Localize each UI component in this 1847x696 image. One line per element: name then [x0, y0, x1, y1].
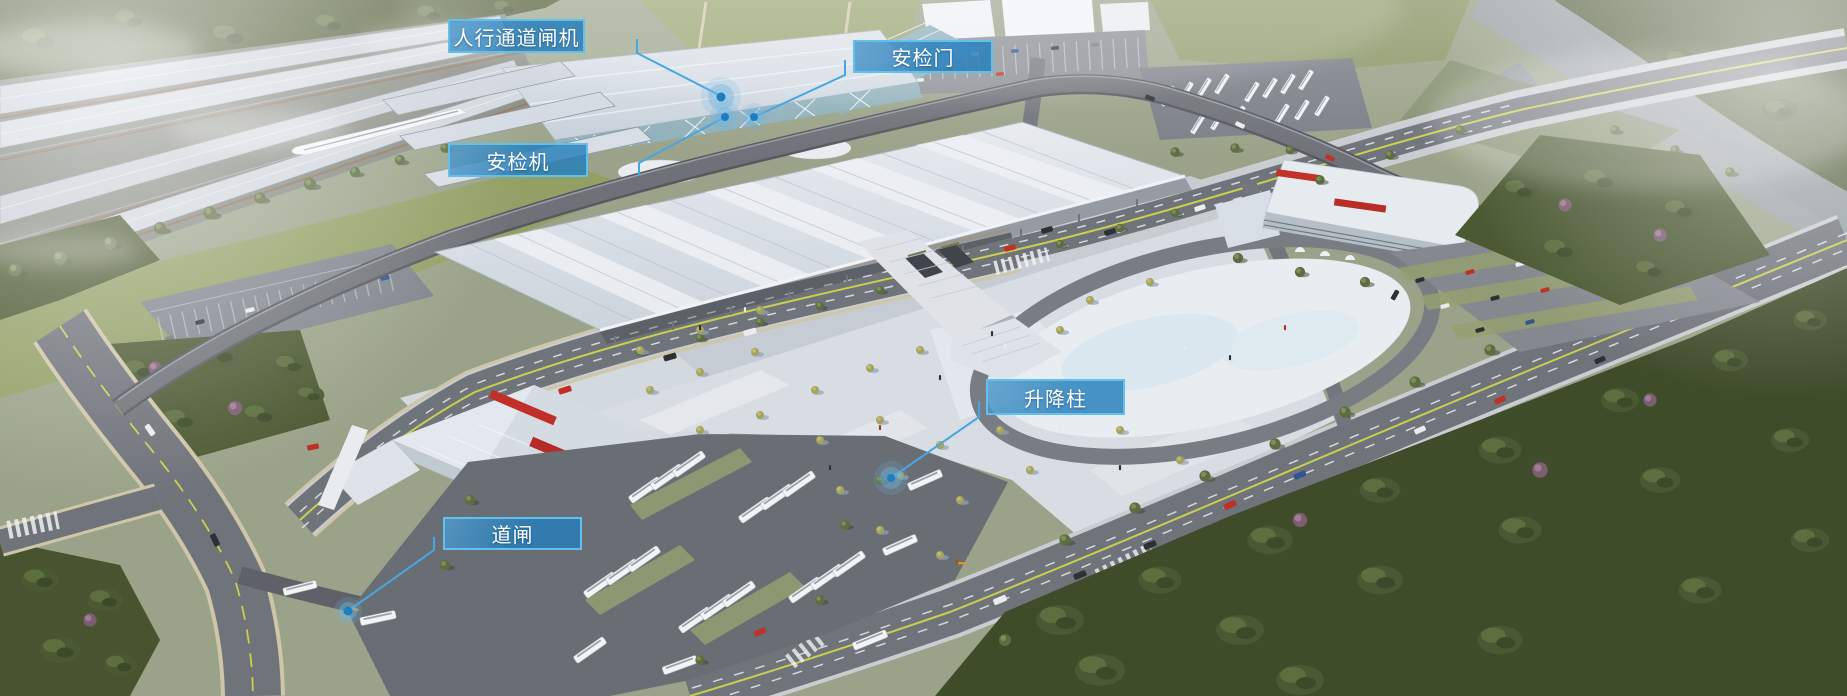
callout-label: 升降柱	[1024, 383, 1087, 412]
callout-road-barrier[interactable]: 道闸	[443, 517, 582, 550]
aerial-render	[0, 0, 1847, 696]
callout-pedestrian-channel-gate[interactable]: 人行通道闸机	[448, 19, 585, 53]
callout-security-scanner[interactable]: 安检机	[448, 143, 588, 177]
callout-label: 安检门	[892, 42, 955, 71]
station-aerial-annotated-view: 人行通道闸机 安检门 安检机 升降柱 道闸	[0, 0, 1847, 696]
callout-lifting-bollard[interactable]: 升降柱	[986, 379, 1125, 415]
callout-label: 人行通道闸机	[454, 22, 580, 51]
callout-label: 安检机	[487, 146, 550, 175]
callout-label: 道闸	[492, 519, 534, 548]
callout-security-door[interactable]: 安检门	[853, 40, 993, 73]
